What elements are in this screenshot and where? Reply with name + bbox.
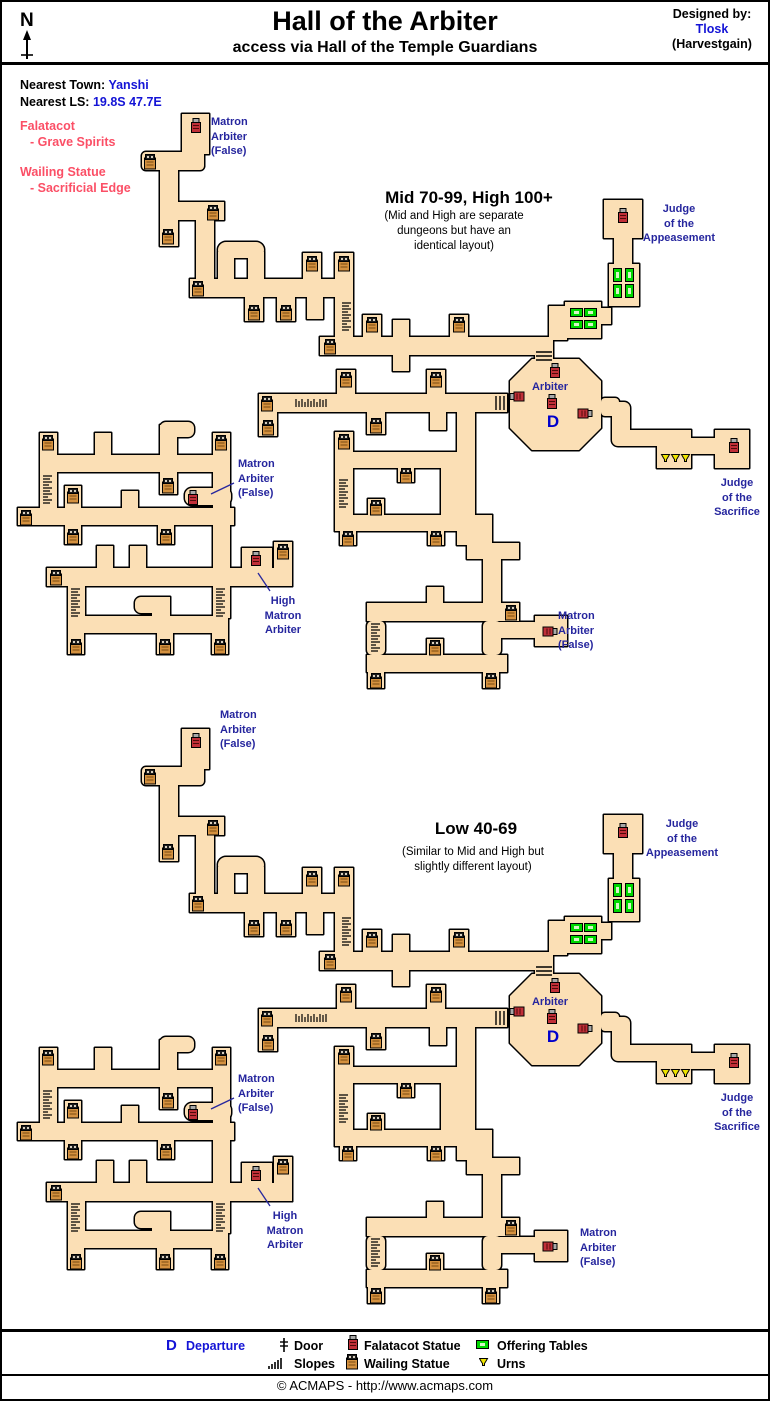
falatacot-note-title: Falatacot <box>20 118 131 134</box>
offering-table-icon <box>476 1340 490 1350</box>
page-title: Hall of the Arbiter <box>272 6 498 37</box>
falatacot-note-sub: - Grave Spirits <box>20 134 131 150</box>
legend-offering-label: Offering Tables <box>497 1339 588 1353</box>
wailing-note-title: Wailing Statue <box>20 164 131 180</box>
label-judge-appeasement-low: Judgeof theAppeasement <box>646 817 718 861</box>
door-icon <box>278 1337 290 1353</box>
legend-door-label: Door <box>294 1339 323 1353</box>
designer-world: (Harvestgain) <box>662 37 762 52</box>
nearest-town-label: Nearest Town: <box>20 78 105 92</box>
label-matron-arbiter-false-right-low: MatronArbiter(False) <box>580 1226 617 1270</box>
label-matron-arbiter-false-left-low: MatronArbiter(False) <box>238 1072 275 1116</box>
map-title-mid-high: Mid 70-99, High 100+ <box>385 188 553 208</box>
label-arbiter-room-low: Arbiter <box>532 995 568 1010</box>
legend-departure-symbol: D <box>166 1337 177 1354</box>
dungeon-map-low <box>18 729 749 1303</box>
label-matron-arbiter-false-top-low: MatronArbiter(False) <box>220 708 257 752</box>
departure-marker: D <box>547 412 559 432</box>
label-judge-sacrifice: Judgeof theSacrifice <box>714 476 760 520</box>
nearest-ls-value: 19.8S 47.7E <box>93 95 162 109</box>
label-matron-arbiter-false-left: MatronArbiter(False) <box>238 457 275 501</box>
map-note-low: (Similar to Mid and High but slightly di… <box>402 845 544 875</box>
label-arbiter-room: Arbiter <box>532 380 568 395</box>
map-title-low: Low 40-69 <box>435 819 517 839</box>
legend-falatacot-label: Falatacot Statue <box>364 1339 461 1353</box>
departure-marker-low: D <box>547 1027 559 1047</box>
slopes-icon <box>268 1357 286 1372</box>
designer-name: Tlosk <box>662 22 762 37</box>
map-page: N Hall of the Arbiter access via Hall of… <box>0 0 770 1401</box>
dungeon-map-mid-high <box>18 114 749 688</box>
label-matron-arbiter-false-right: MatronArbiter(False) <box>558 609 595 653</box>
legend-wailing-label: Wailing Statue <box>364 1357 450 1371</box>
compass-north-icon: N <box>10 6 40 62</box>
wailing-note-sub: - Sacrificial Edge <box>20 180 131 196</box>
label-judge-sacrifice-low: Judgeof theSacrifice <box>714 1091 760 1135</box>
copyright: © ACMAPS - http://www.acmaps.com <box>2 1378 768 1393</box>
creature-notes: Falatacot - Grave Spirits Wailing Statue… <box>20 118 131 196</box>
legend: D Departure Door Slopes Falatacot Statue… <box>2 1329 768 1376</box>
label-matron-arbiter-false-top: MatronArbiter(False) <box>211 115 248 159</box>
designed-by-label: Designed by: <box>662 7 762 22</box>
wailing-statue-icon <box>346 1354 359 1370</box>
label-high-matron-arbiter: HighMatronArbiter <box>265 594 302 638</box>
nearest-ls-label: Nearest LS: <box>20 95 89 109</box>
header: N Hall of the Arbiter access via Hall of… <box>2 2 768 65</box>
page-subtitle: access via Hall of the Temple Guardians <box>233 39 538 57</box>
nearest-town: Nearest Town: Yanshi <box>20 78 149 92</box>
nearest-ls: Nearest LS: 19.8S 47.7E <box>20 95 162 109</box>
label-judge-appeasement: Judgeof theAppeasement <box>643 202 715 246</box>
legend-slopes-label: Slopes <box>294 1357 335 1371</box>
compass-letter: N <box>20 10 34 31</box>
falatacot-statue-icon <box>347 1335 360 1351</box>
legend-departure-label: Departure <box>186 1339 245 1353</box>
urn-icon <box>479 1358 489 1367</box>
label-high-matron-arbiter-low: HighMatronArbiter <box>267 1209 304 1253</box>
legend-urns-label: Urns <box>497 1357 525 1371</box>
designed-by-block: Designed by: Tlosk (Harvestgain) <box>662 7 762 52</box>
map-note-mid-high: (Mid and High are separate dungeons but … <box>384 209 523 254</box>
nearest-town-value: Yanshi <box>108 78 148 92</box>
